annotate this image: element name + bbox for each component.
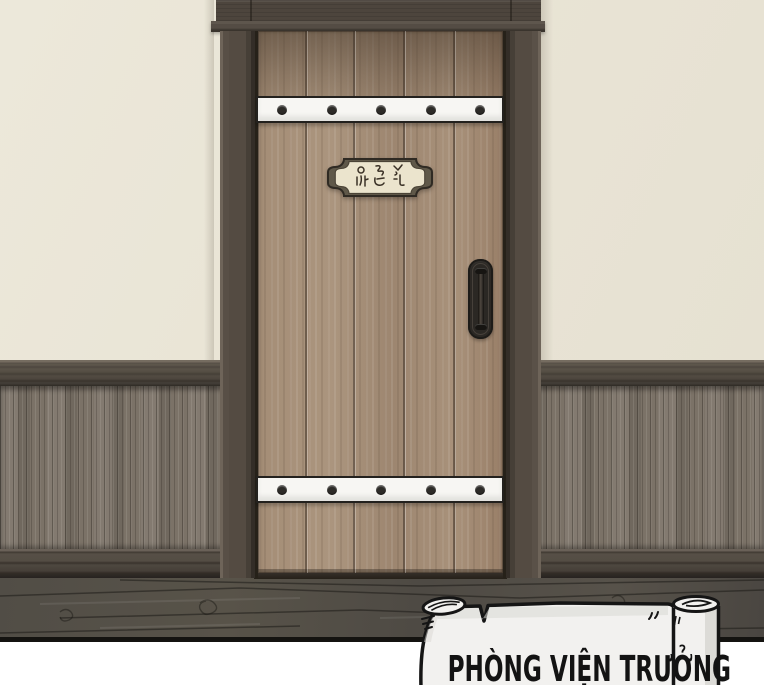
door-lintel	[216, 0, 541, 21]
metal-strap-bottom	[256, 476, 504, 503]
wall-shadow-right	[541, 0, 553, 362]
rivet	[327, 485, 337, 495]
door-jamb-right	[503, 31, 541, 578]
nameplate-graphic	[324, 155, 436, 200]
lintel-seam	[510, 0, 512, 21]
rivet	[327, 105, 337, 115]
handle-pull-bar	[478, 271, 484, 327]
rivet	[475, 485, 485, 495]
comic-panel: 원장실	[0, 0, 764, 685]
rivet	[376, 105, 386, 115]
door-nameplate: 원장실	[324, 155, 436, 200]
metal-strap-top	[256, 96, 504, 123]
rivet	[426, 105, 436, 115]
handle-knob-bottom	[475, 324, 487, 330]
rivet	[277, 485, 287, 495]
handle-knob-top	[475, 268, 487, 274]
rivet	[426, 485, 436, 495]
lintel-seam	[250, 0, 252, 21]
door-handle	[468, 259, 493, 339]
wall-shadow-left	[204, 0, 214, 362]
door-jamb-left	[220, 31, 258, 578]
rivet	[376, 485, 386, 495]
caption-label: PHÒNG VIỆN TRƯỞNG	[448, 652, 659, 685]
rivet	[277, 105, 287, 115]
rivet	[475, 105, 485, 115]
